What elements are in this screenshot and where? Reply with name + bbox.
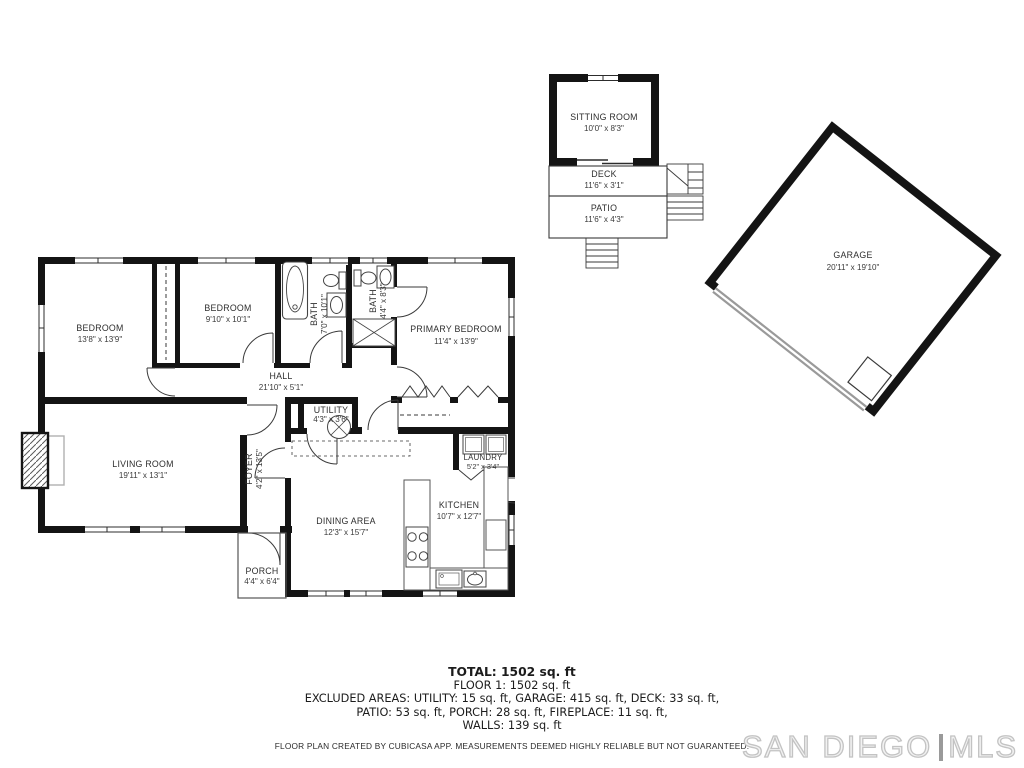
room-label-bath-2: BATH 4'4" x 8'3" (368, 283, 388, 319)
room-dims: 10'0" x 8'3" (584, 124, 624, 133)
room-name: UTILITY (314, 405, 349, 415)
room-name: BATH (309, 302, 319, 326)
room-label-primary-bedroom: PRIMARY BEDROOM 11'4" x 13'9" (410, 324, 501, 346)
room-name: PORCH (245, 566, 278, 576)
room-name: LIVING ROOM (112, 459, 173, 469)
dishwasher (436, 570, 462, 588)
room-dims: 5'2" x 3'4" (467, 462, 500, 471)
floor-plan-drawing: BEDROOM 13'8" x 13'9" BEDROOM 9'10" x 10… (0, 0, 1024, 768)
room-dims: 11'6" x 3'1" (584, 181, 623, 190)
deck-stairs (667, 164, 703, 194)
room-dims: 13'8" x 13'9" (78, 335, 123, 344)
room-name: BATH (368, 289, 378, 313)
watermark-mls-text: MLS (948, 729, 1018, 765)
toilet-bath1 (324, 272, 347, 289)
area-summary: TOTAL: 1502 sq. ft FLOOR 1: 1502 sq. ft … (0, 666, 1024, 732)
room-dims: 9'10" x 10'1" (206, 315, 251, 324)
excluded-areas-line-1: EXCLUDED AREAS: UTILITY: 15 sq. ft, GARA… (0, 692, 1024, 705)
room-dims: 7'0" x 10'1" (320, 294, 329, 334)
room-name: PATIO (591, 203, 617, 213)
stove (406, 527, 428, 567)
room-label-sitting-room: SITTING ROOM 10'0" x 8'3" (570, 112, 638, 133)
room-label-bedroom-1: BEDROOM 13'8" x 13'9" (76, 323, 123, 344)
room-label-hall: HALL 21'10" x 5'1" (259, 371, 304, 392)
patio-stairs (667, 196, 703, 220)
room-label-dining-area: DINING AREA 12'3" x 15'7" (316, 516, 375, 537)
room-dims: 4'4" x 6'4" (244, 577, 280, 586)
toilet-bath2 (354, 270, 376, 286)
floor-plan-page: BEDROOM 13'8" x 13'9" BEDROOM 9'10" x 10… (0, 0, 1024, 768)
room-name: HALL (269, 371, 292, 381)
room-dims: 11'4" x 13'9" (434, 337, 478, 346)
room-name: SITTING ROOM (570, 112, 638, 122)
room-dims: 20'11" x 19'10" (827, 263, 880, 272)
room-dims: 19'11" x 13'1" (119, 471, 167, 480)
fireplace (22, 433, 64, 488)
room-name: DECK (591, 169, 616, 179)
room-name: FOYER (244, 453, 254, 485)
room-name: DINING AREA (316, 516, 375, 526)
washer-dryer (463, 435, 506, 454)
room-dims: 4'4" x 8'3" (379, 283, 388, 319)
room-label-living-room: LIVING ROOM 19'11" x 13'1" (112, 459, 173, 480)
room-name: KITCHEN (439, 500, 479, 510)
excluded-areas-line-2: PATIO: 53 sq. ft, PORCH: 28 sq. ft, FIRE… (0, 706, 1024, 719)
room-label-foyer: FOYER 4'2" x 13'5" (244, 449, 264, 489)
room-dims: 11'6" x 4'3" (584, 215, 623, 224)
room-label-utility: UTILITY 4'3" x 3'6" (313, 405, 349, 424)
shower-bath2 (353, 319, 395, 346)
room-label-laundry: LAUNDRY 5'2" x 3'4" (464, 453, 503, 471)
room-name: PRIMARY BEDROOM (410, 324, 501, 334)
watermark-divider-bar (939, 734, 943, 761)
room-dims: 21'10" x 5'1" (259, 383, 304, 392)
room-dims: 10'7" x 12'7" (437, 512, 482, 521)
room-dims: 4'3" x 3'6" (313, 415, 349, 424)
kitchen-sink (464, 571, 486, 587)
watermark-brand-text: SAN DIEGO (742, 729, 932, 765)
sandiego-mls-watermark: SAN DIEGO MLS (742, 729, 1018, 765)
sink-vanity-bath1 (327, 293, 346, 317)
room-label-patio: PATIO 11'6" x 4'3" (584, 203, 623, 224)
floor1-area-line: FLOOR 1: 1502 sq. ft (0, 679, 1024, 692)
total-area-line: TOTAL: 1502 sq. ft (0, 666, 1024, 679)
room-name: BEDROOM (204, 303, 251, 313)
room-label-deck: DECK 11'6" x 3'1" (584, 169, 623, 190)
room-name: GARAGE (833, 250, 872, 260)
walls-layer (38, 257, 515, 597)
room-label-kitchen: KITCHEN 10'7" x 12'7" (437, 500, 482, 521)
room-name: BEDROOM (76, 323, 123, 333)
room-name: LAUNDRY (464, 453, 503, 462)
room-dims: 4'2" x 13'5" (255, 449, 264, 489)
room-label-bedroom-2: BEDROOM 9'10" x 10'1" (204, 303, 251, 324)
patio-bottom-stairs (586, 238, 618, 268)
room-label-porch: PORCH 4'4" x 6'4" (244, 566, 280, 586)
room-dims: 12'3" x 15'7" (324, 528, 369, 537)
room-label-bath-1: BATH 7'0" x 10'1" (309, 294, 329, 334)
bathtub (283, 262, 308, 319)
